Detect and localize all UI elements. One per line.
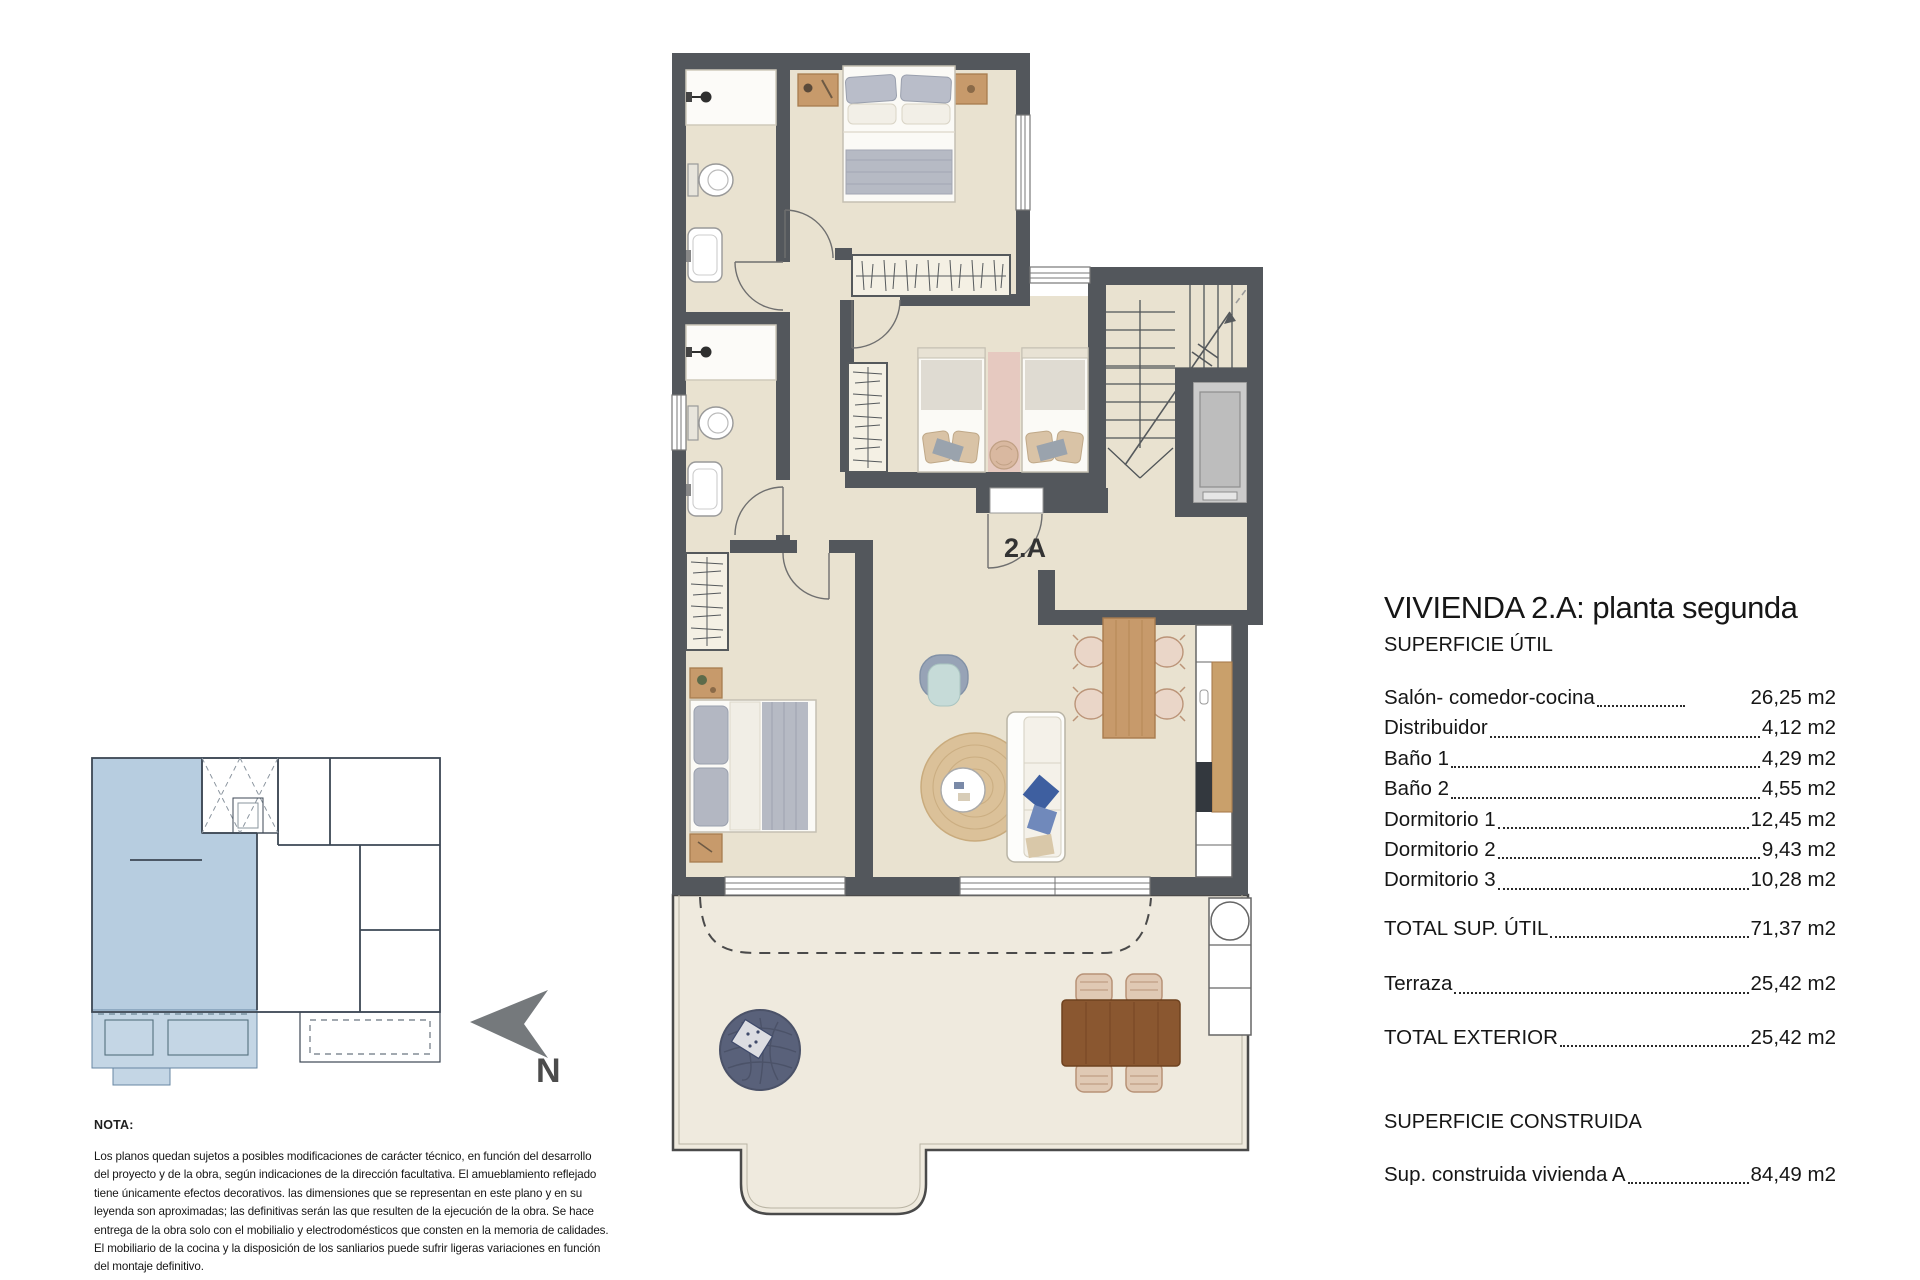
terrace-utility-unit <box>1209 898 1251 1035</box>
area-label: TOTAL SUP. ÚTIL <box>1384 914 1548 944</box>
area-label: Dormitorio 2 <box>1384 835 1496 865</box>
area-label: Distribuidor <box>1384 713 1488 743</box>
dot-leader <box>1498 888 1749 890</box>
round-pouf <box>990 441 1018 469</box>
terrace-pouf <box>720 1010 800 1090</box>
sink-2 <box>686 462 722 516</box>
area-row: Dormitorio 1 12,45 m2 <box>1384 805 1836 835</box>
single-bed-right <box>1022 348 1088 472</box>
dot-leader <box>1498 827 1749 829</box>
window-bath2-west <box>672 395 686 450</box>
bedroom-2 <box>918 348 1088 472</box>
note-body: Los planos quedan sujetos a posibles mod… <box>94 1148 654 1277</box>
dot-leader <box>1454 992 1748 994</box>
key-plan-highlighted-terrace <box>92 1010 257 1068</box>
area-label: Baño 1 <box>1384 744 1449 774</box>
useful-area-list: Salón- comedor-cocina 26,25 m2 Distribui… <box>1384 683 1836 896</box>
area-label: Baño 2 <box>1384 774 1449 804</box>
wardrobe-bedroom3 <box>686 553 728 650</box>
key-plan-stair-core <box>202 758 278 833</box>
key-plan-highlighted-unit <box>92 758 257 1010</box>
elevator <box>1193 382 1247 503</box>
area-value: 10,28 m2 <box>1751 865 1836 895</box>
sink-1 <box>686 228 722 282</box>
dot-leader <box>1498 857 1760 859</box>
area-value: 25,42 m2 <box>1751 969 1836 999</box>
sliding-door-living-south <box>960 877 1150 895</box>
area-label: Sup. construida vivienda A <box>1384 1160 1626 1190</box>
single-bed-left <box>918 348 985 472</box>
area-label: Dormitorio 1 <box>1384 805 1496 835</box>
area-row: Dormitorio 2 9,43 m2 <box>1384 835 1836 865</box>
key-plan-right-terrace <box>300 1012 440 1062</box>
dot-leader <box>1597 705 1685 707</box>
outdoor-table <box>1062 1000 1180 1066</box>
area-value: 26,25 m2 <box>1751 683 1836 713</box>
area-label: Salón- comedor-cocina <box>1384 683 1595 713</box>
dot-leader <box>1550 936 1748 938</box>
area-row: Baño 2 4,55 m2 <box>1384 774 1836 804</box>
north-arrow-icon: N <box>470 990 561 1090</box>
double-bed <box>843 66 955 202</box>
areas-panel: VIVIENDA 2.A: planta segunda SUPERFICIE … <box>1384 590 1836 1190</box>
area-row: Distribuidor 4,12 m2 <box>1384 713 1836 743</box>
dot-leader <box>1451 797 1760 799</box>
wardrobe-bedroom1 <box>852 255 1010 296</box>
area-label: Dormitorio 3 <box>1384 865 1496 895</box>
area-value: 9,43 m2 <box>1762 835 1836 865</box>
window-bedroom3-south <box>725 877 845 895</box>
dot-leader <box>1451 766 1760 768</box>
area-value: 4,55 m2 <box>1762 774 1836 804</box>
dot-leader <box>1560 1045 1749 1047</box>
outdoor-sink <box>1211 902 1249 940</box>
north-label: N <box>536 1052 561 1090</box>
floor-plan-sheet: 2.A <box>0 0 1920 1280</box>
window-bedroom1-east <box>1016 115 1030 210</box>
sofa <box>1007 712 1065 862</box>
main-floor-plan: 2.A <box>650 40 1290 1240</box>
area-value: 12,45 m2 <box>1751 805 1836 835</box>
toilet-2 <box>688 406 733 440</box>
legal-note: NOTA: Los planos quedan sujetos a posibl… <box>94 1118 654 1277</box>
coffee-table <box>941 768 985 812</box>
built-area-header: SUPERFICIE CONSTRUIDA <box>1384 1111 1836 1134</box>
area-value: 25,42 m2 <box>1751 1023 1836 1053</box>
key-plan: N <box>60 740 580 1120</box>
double-bed <box>690 700 816 832</box>
terrace <box>673 895 1251 1214</box>
oven <box>1196 762 1212 812</box>
window-hall-north <box>1030 267 1090 283</box>
total-exterior-row: TOTAL EXTERIOR 25,42 m2 <box>1384 1023 1836 1053</box>
page-title: VIVIENDA 2.A: planta segunda <box>1384 590 1836 626</box>
area-row: Salón- comedor-cocina 26,25 m2 <box>1384 683 1836 713</box>
area-value: 84,49 m2 <box>1751 1160 1836 1190</box>
kitchen-counter <box>1196 625 1232 877</box>
entry-landing <box>990 488 1043 513</box>
useful-area-header: SUPERFICIE ÚTIL <box>1384 634 1836 657</box>
area-row: Baño 1 4,29 m2 <box>1384 744 1836 774</box>
wardrobe-bedroom2 <box>848 363 887 472</box>
unit-label: 2.A <box>1004 533 1046 563</box>
area-value: 71,37 m2 <box>1751 914 1836 944</box>
dot-leader <box>1490 736 1760 738</box>
area-value: 4,12 m2 <box>1762 713 1836 743</box>
built-area-row: Sup. construida vivienda A 84,49 m2 <box>1384 1160 1836 1190</box>
area-label: TOTAL EXTERIOR <box>1384 1023 1558 1053</box>
area-label: Terraza <box>1384 969 1452 999</box>
area-row: Dormitorio 3 10,28 m2 <box>1384 865 1836 895</box>
area-value: 4,29 m2 <box>1762 744 1836 774</box>
note-title: NOTA: <box>94 1118 654 1132</box>
toilet-1 <box>688 164 733 196</box>
terrace-row: Terraza 25,42 m2 <box>1384 969 1836 999</box>
total-useful-row: TOTAL SUP. ÚTIL 71,37 m2 <box>1384 914 1836 944</box>
dot-leader <box>1628 1182 1749 1184</box>
